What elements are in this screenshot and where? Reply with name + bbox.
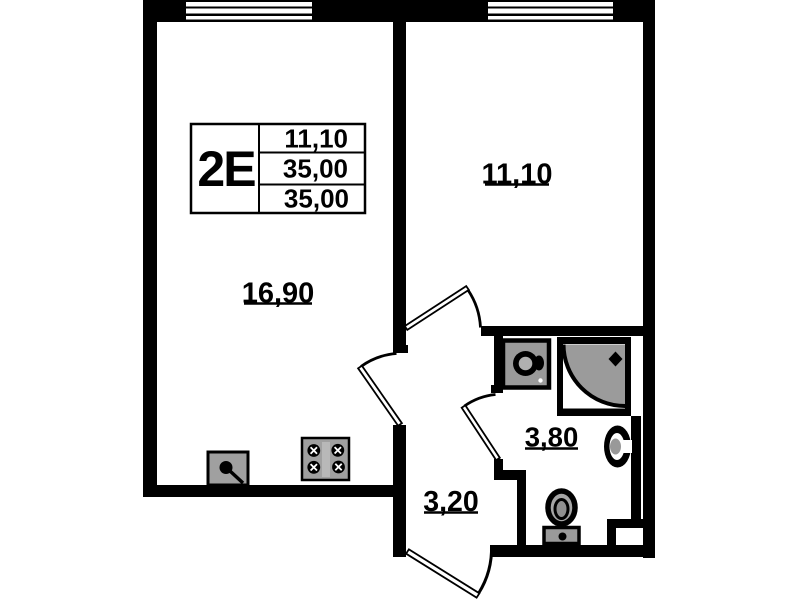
svg-text:35,00: 35,00 xyxy=(284,184,349,214)
svg-text:11,10: 11,10 xyxy=(284,124,348,154)
svg-text:2Е: 2Е xyxy=(197,141,255,197)
svg-text:35,00: 35,00 xyxy=(283,154,348,184)
